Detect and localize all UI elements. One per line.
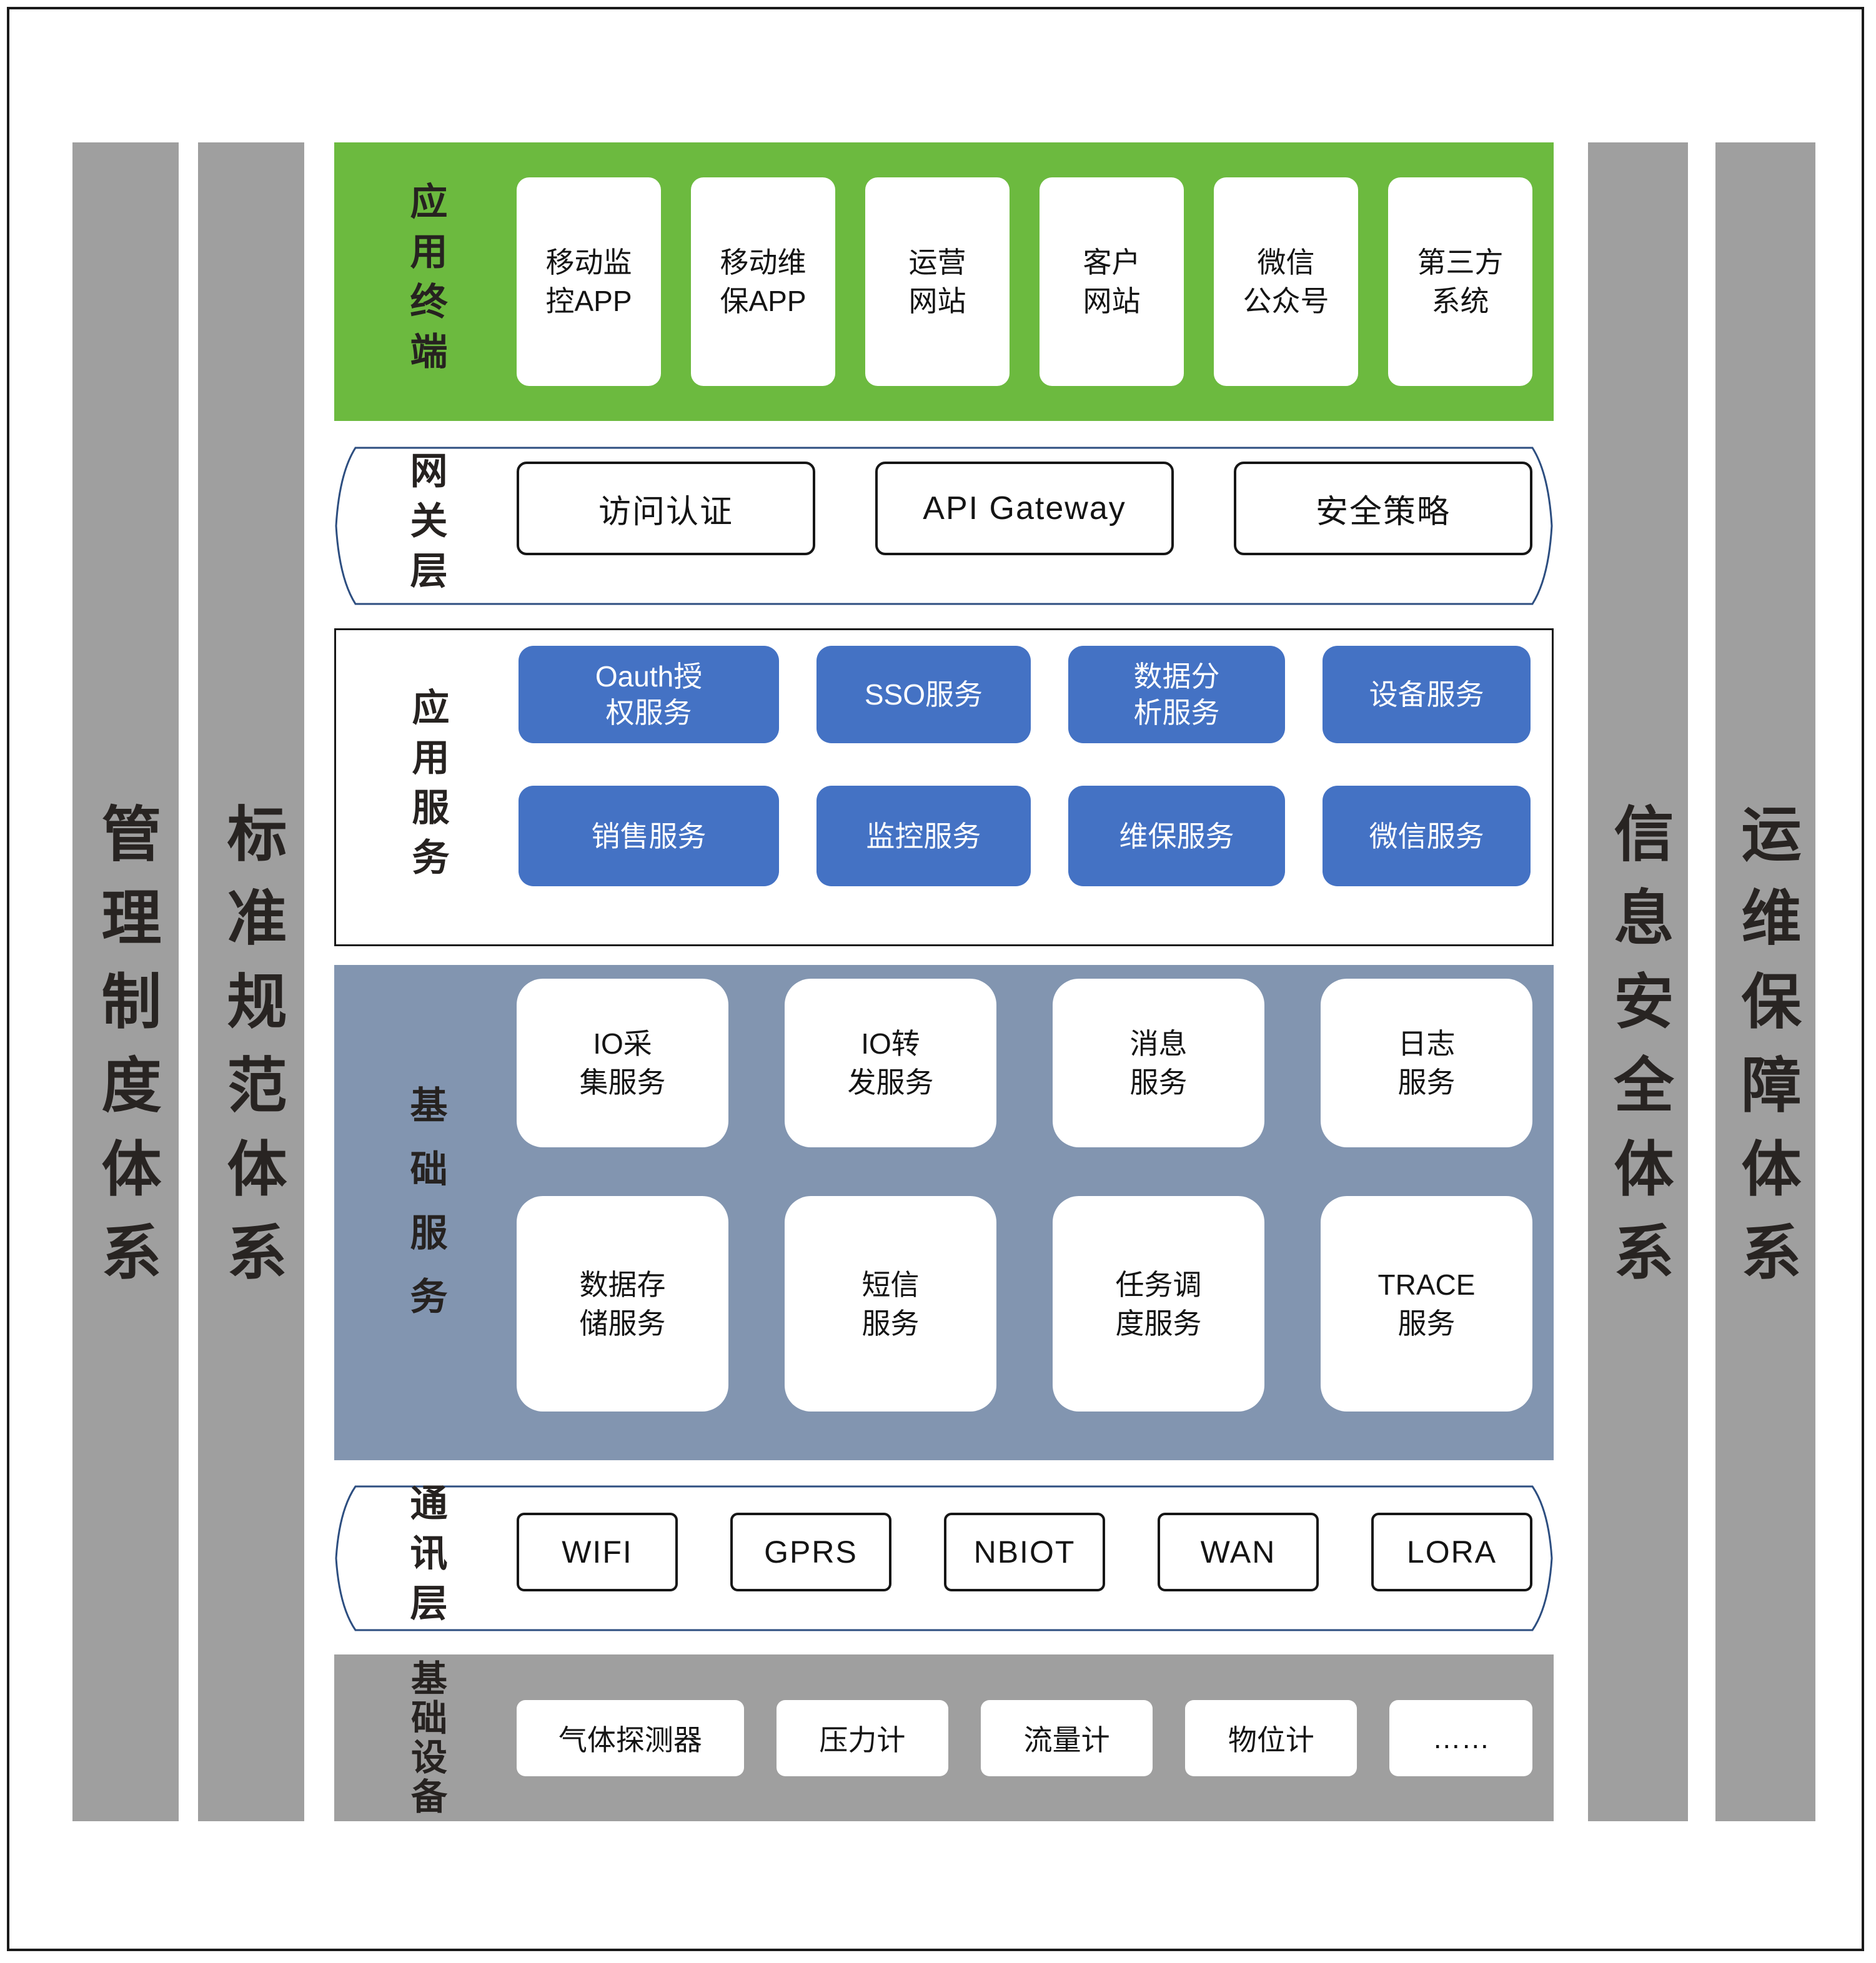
gateway-box-access-auth: 访问认证 xyxy=(517,462,815,555)
device-box-pressure-gauge: 压力计 xyxy=(777,1700,948,1776)
bar-management-system: 管理制度体系 xyxy=(72,142,179,1821)
appsvc-box-oauth: Oauth授 权服务 xyxy=(519,646,779,743)
layer-basic-services: 基础服务 IO采 集服务 IO转 发服务 消息 服务 日志 服务 数据存 储服务… xyxy=(334,965,1554,1460)
basesvc-row-2: 数据存 储服务 短信 服务 任务调 度服务 TRACE 服务 xyxy=(517,1196,1532,1412)
basesvc-box-sms: 短信 服务 xyxy=(785,1196,996,1412)
gateway-label: 网关层 xyxy=(407,451,444,601)
basesvc-box-io-collect: IO采 集服务 xyxy=(517,979,728,1147)
basesvc-label-zone: 基础服务 xyxy=(334,965,517,1460)
appsvc-row-2: 销售服务 监控服务 维保服务 微信服务 xyxy=(519,786,1531,886)
layer-communication: 通讯层 WIFI GPRS NBIOT WAN LORA xyxy=(334,1485,1554,1632)
appsvc-label: 应用服务 xyxy=(409,688,446,888)
devices-label-zone: 基础设备 xyxy=(334,1654,517,1821)
bar-management-label: 管理制度体系 xyxy=(96,803,156,1305)
basesvc-box-log: 日志 服务 xyxy=(1321,979,1532,1147)
basesvc-box-data-storage: 数据存 储服务 xyxy=(517,1196,728,1412)
device-box-flow-meter: 流量计 xyxy=(981,1700,1153,1776)
comm-box-nbiot: NBIOT xyxy=(944,1513,1105,1591)
terminal-label-zone: 应用终端 xyxy=(334,142,517,421)
appsvc-box-data-analysis: 数据分 析服务 xyxy=(1068,646,1286,743)
gateway-box-api-gateway: API Gateway xyxy=(875,462,1174,555)
terminal-box-mobile-maintenance-app: 移动维 保APP xyxy=(691,177,835,386)
appsvc-box-monitor: 监控服务 xyxy=(816,786,1031,886)
bar-security-label: 信息安全体系 xyxy=(1608,803,1668,1305)
layer-gateway: 网关层 访问认证 API Gateway 安全策略 xyxy=(334,446,1554,606)
gateway-label-zone: 网关层 xyxy=(334,446,517,606)
layer-application-services: 应用服务 Oauth授 权服务 SSO服务 数据分 析服务 设备服务 销售服务 … xyxy=(334,628,1554,946)
basesvc-box-trace: TRACE 服务 xyxy=(1321,1196,1532,1412)
appsvc-box-maintenance: 维保服务 xyxy=(1068,786,1286,886)
basesvc-rows: IO采 集服务 IO转 发服务 消息 服务 日志 服务 数据存 储服务 短信 服… xyxy=(517,965,1554,1460)
device-boxes: 气体探测器 压力计 流量计 物位计 …… xyxy=(517,1654,1554,1821)
layer-basic-devices: 基础设备 气体探测器 压力计 流量计 物位计 …… xyxy=(334,1654,1554,1821)
appsvc-box-device: 设备服务 xyxy=(1323,646,1531,743)
appsvc-row-1: Oauth授 权服务 SSO服务 数据分 析服务 设备服务 xyxy=(519,646,1531,743)
basesvc-box-task-schedule: 任务调 度服务 xyxy=(1053,1196,1264,1412)
bar-security-system: 信息安全体系 xyxy=(1588,142,1688,1821)
comm-label-zone: 通讯层 xyxy=(334,1485,517,1632)
comm-box-wan: WAN xyxy=(1158,1513,1319,1591)
devices-label: 基础设备 xyxy=(407,1659,444,1817)
terminal-boxes: 移动监 控APP 移动维 保APP 运营 网站 客户 网站 微信 公众号 第三方… xyxy=(517,142,1554,421)
appsvc-box-sso: SSO服务 xyxy=(816,646,1031,743)
gateway-boxes: 访问认证 API Gateway 安全策略 xyxy=(517,446,1554,606)
appsvc-box-sales: 销售服务 xyxy=(519,786,779,886)
terminal-box-wechat-official-account: 微信 公众号 xyxy=(1214,177,1358,386)
comm-box-wifi: WIFI xyxy=(517,1513,678,1591)
bar-standards-system: 标准规范体系 xyxy=(198,142,304,1821)
gateway-box-security-policy: 安全策略 xyxy=(1234,462,1532,555)
appsvc-box-wechat: 微信服务 xyxy=(1323,786,1531,886)
comm-box-lora: LORA xyxy=(1371,1513,1532,1591)
bar-standards-label: 标准规范体系 xyxy=(221,803,281,1305)
device-box-gas-detector: 气体探测器 xyxy=(517,1700,744,1776)
terminal-label: 应用终端 xyxy=(407,182,444,382)
basesvc-row-1: IO采 集服务 IO转 发服务 消息 服务 日志 服务 xyxy=(517,979,1532,1147)
comm-boxes: WIFI GPRS NBIOT WAN LORA xyxy=(517,1485,1554,1632)
device-box-level-meter: 物位计 xyxy=(1185,1700,1357,1776)
appsvc-label-zone: 应用服务 xyxy=(336,630,519,944)
terminal-box-operation-website: 运营 网站 xyxy=(865,177,1010,386)
bar-operations-label: 运维保障体系 xyxy=(1735,803,1795,1305)
terminal-box-mobile-monitor-app: 移动监 控APP xyxy=(517,177,661,386)
basesvc-label: 基础服务 xyxy=(407,1085,444,1340)
appsvc-rows: Oauth授 权服务 SSO服务 数据分 析服务 设备服务 销售服务 监控服务 … xyxy=(519,630,1552,944)
layer-application-terminal: 应用终端 移动监 控APP 移动维 保APP 运营 网站 客户 网站 微信 公众… xyxy=(334,142,1554,421)
terminal-box-third-party-system: 第三方 系统 xyxy=(1388,177,1532,386)
comm-box-gprs: GPRS xyxy=(730,1513,891,1591)
bar-operations-system: 运维保障体系 xyxy=(1715,142,1815,1821)
terminal-box-customer-website: 客户 网站 xyxy=(1040,177,1184,386)
device-box-ellipsis: …… xyxy=(1389,1700,1532,1776)
basesvc-box-io-forward: IO转 发服务 xyxy=(785,979,996,1147)
comm-label: 通讯层 xyxy=(407,1483,444,1633)
basesvc-box-message: 消息 服务 xyxy=(1053,979,1264,1147)
